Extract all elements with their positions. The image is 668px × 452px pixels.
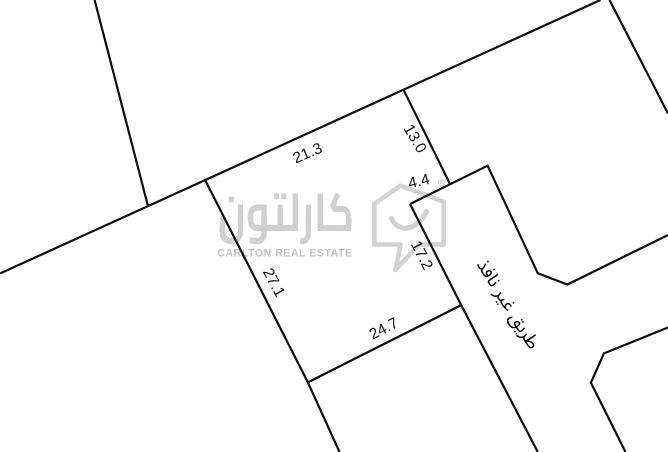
svg-text:4.4: 4.4: [407, 171, 432, 192]
svg-text:13.0: 13.0: [400, 122, 430, 157]
svg-text:21.3: 21.3: [291, 140, 325, 167]
svg-text:CARLTON REAL ESTATE: CARLTON REAL ESTATE: [217, 247, 352, 259]
